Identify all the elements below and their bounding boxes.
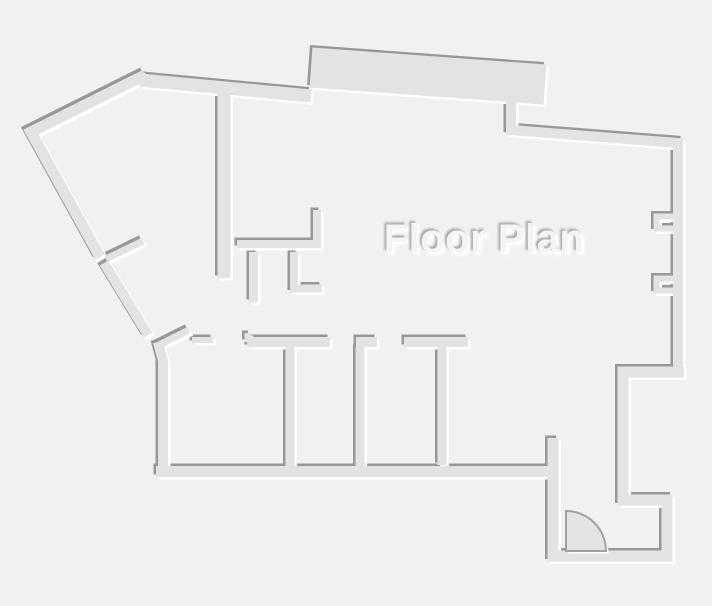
floor-plan-drawing	[0, 0, 712, 606]
walls-fill-layer	[31, 68, 684, 557]
door-swing-icon	[566, 511, 609, 554]
door-swing-arc	[566, 511, 606, 551]
plan-title: Floor Plan	[376, 219, 592, 261]
floor-plan-canvas: Floor Plan	[0, 0, 712, 606]
